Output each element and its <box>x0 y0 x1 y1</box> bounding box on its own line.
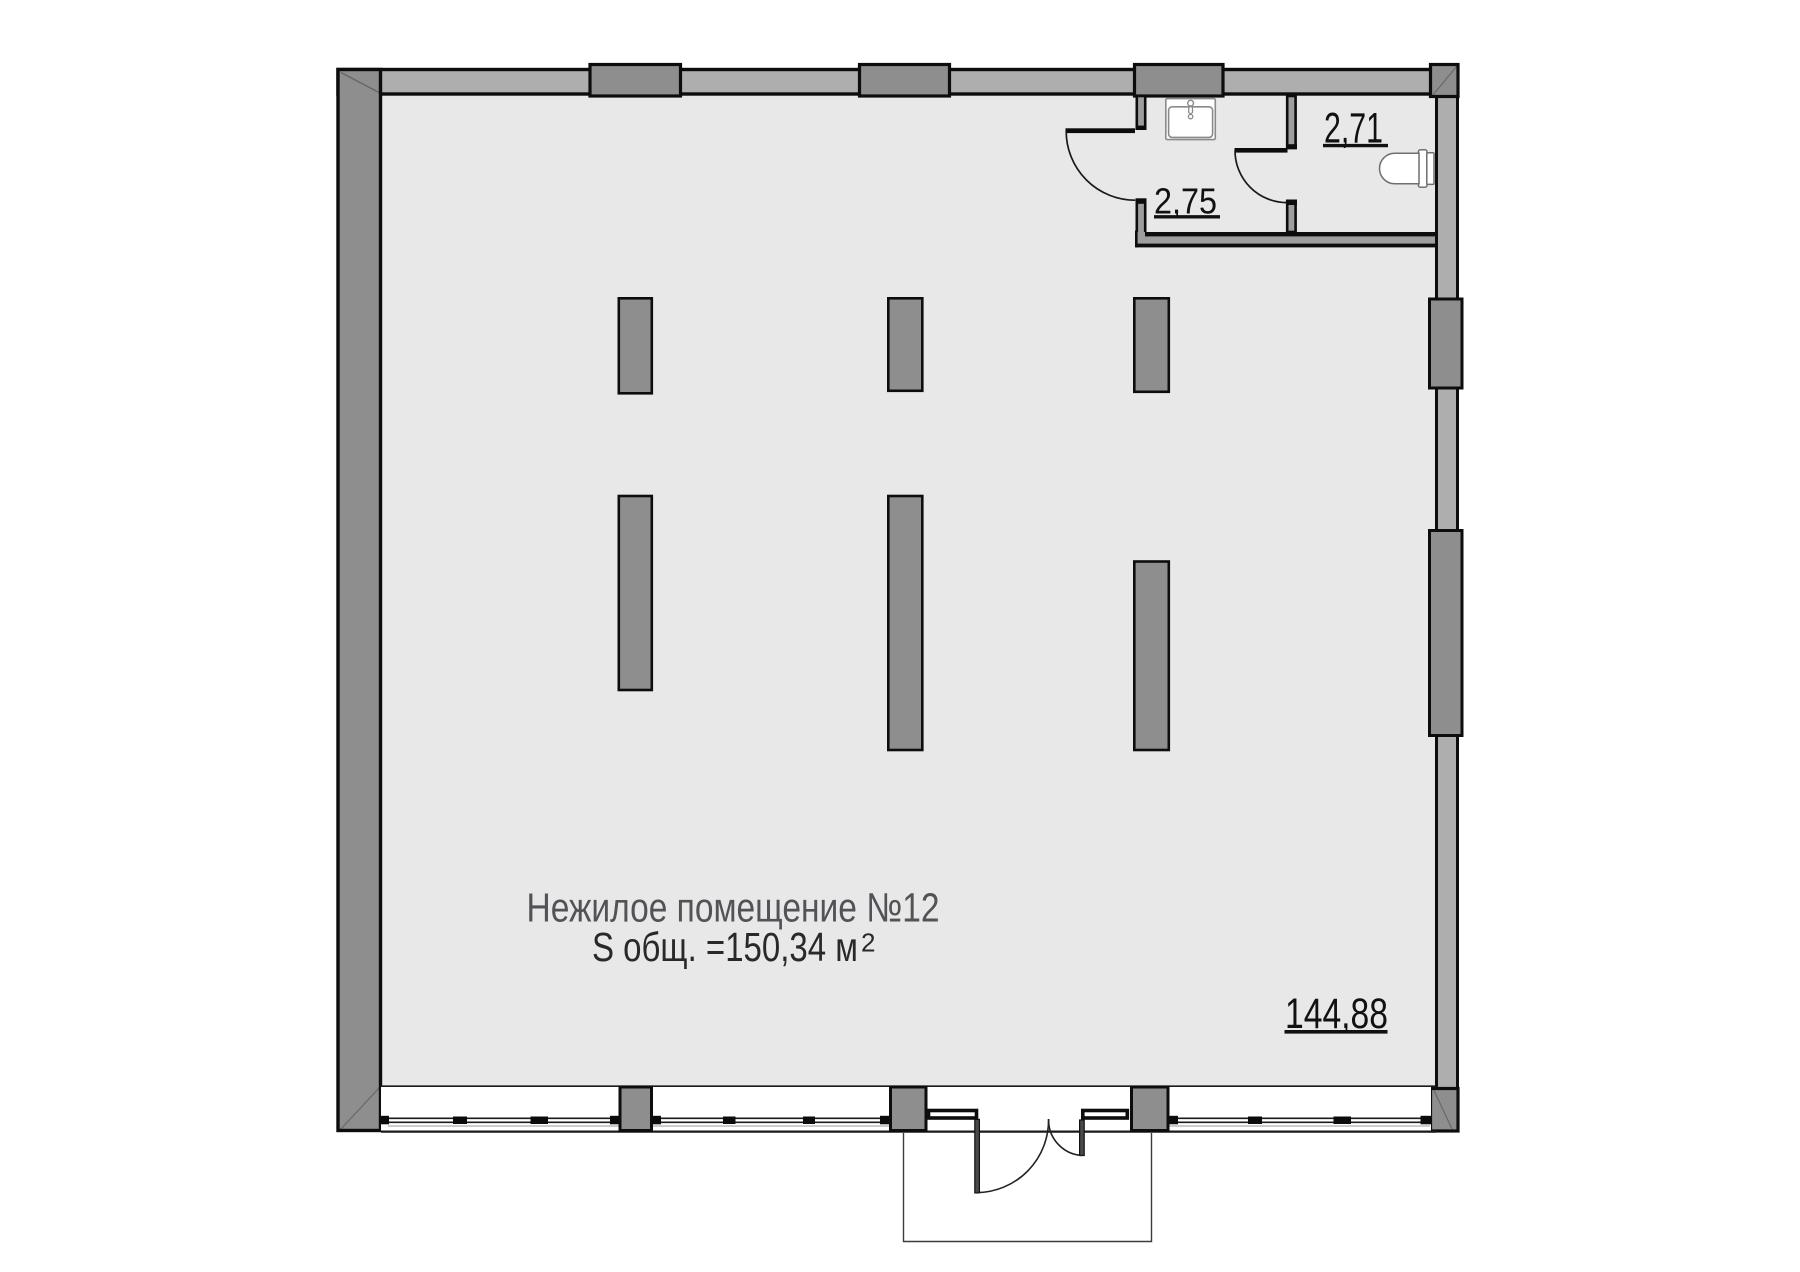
svg-text:S общ. =150,34 м: S общ. =150,34 м <box>592 924 858 970</box>
svg-text:2: 2 <box>861 928 875 958</box>
